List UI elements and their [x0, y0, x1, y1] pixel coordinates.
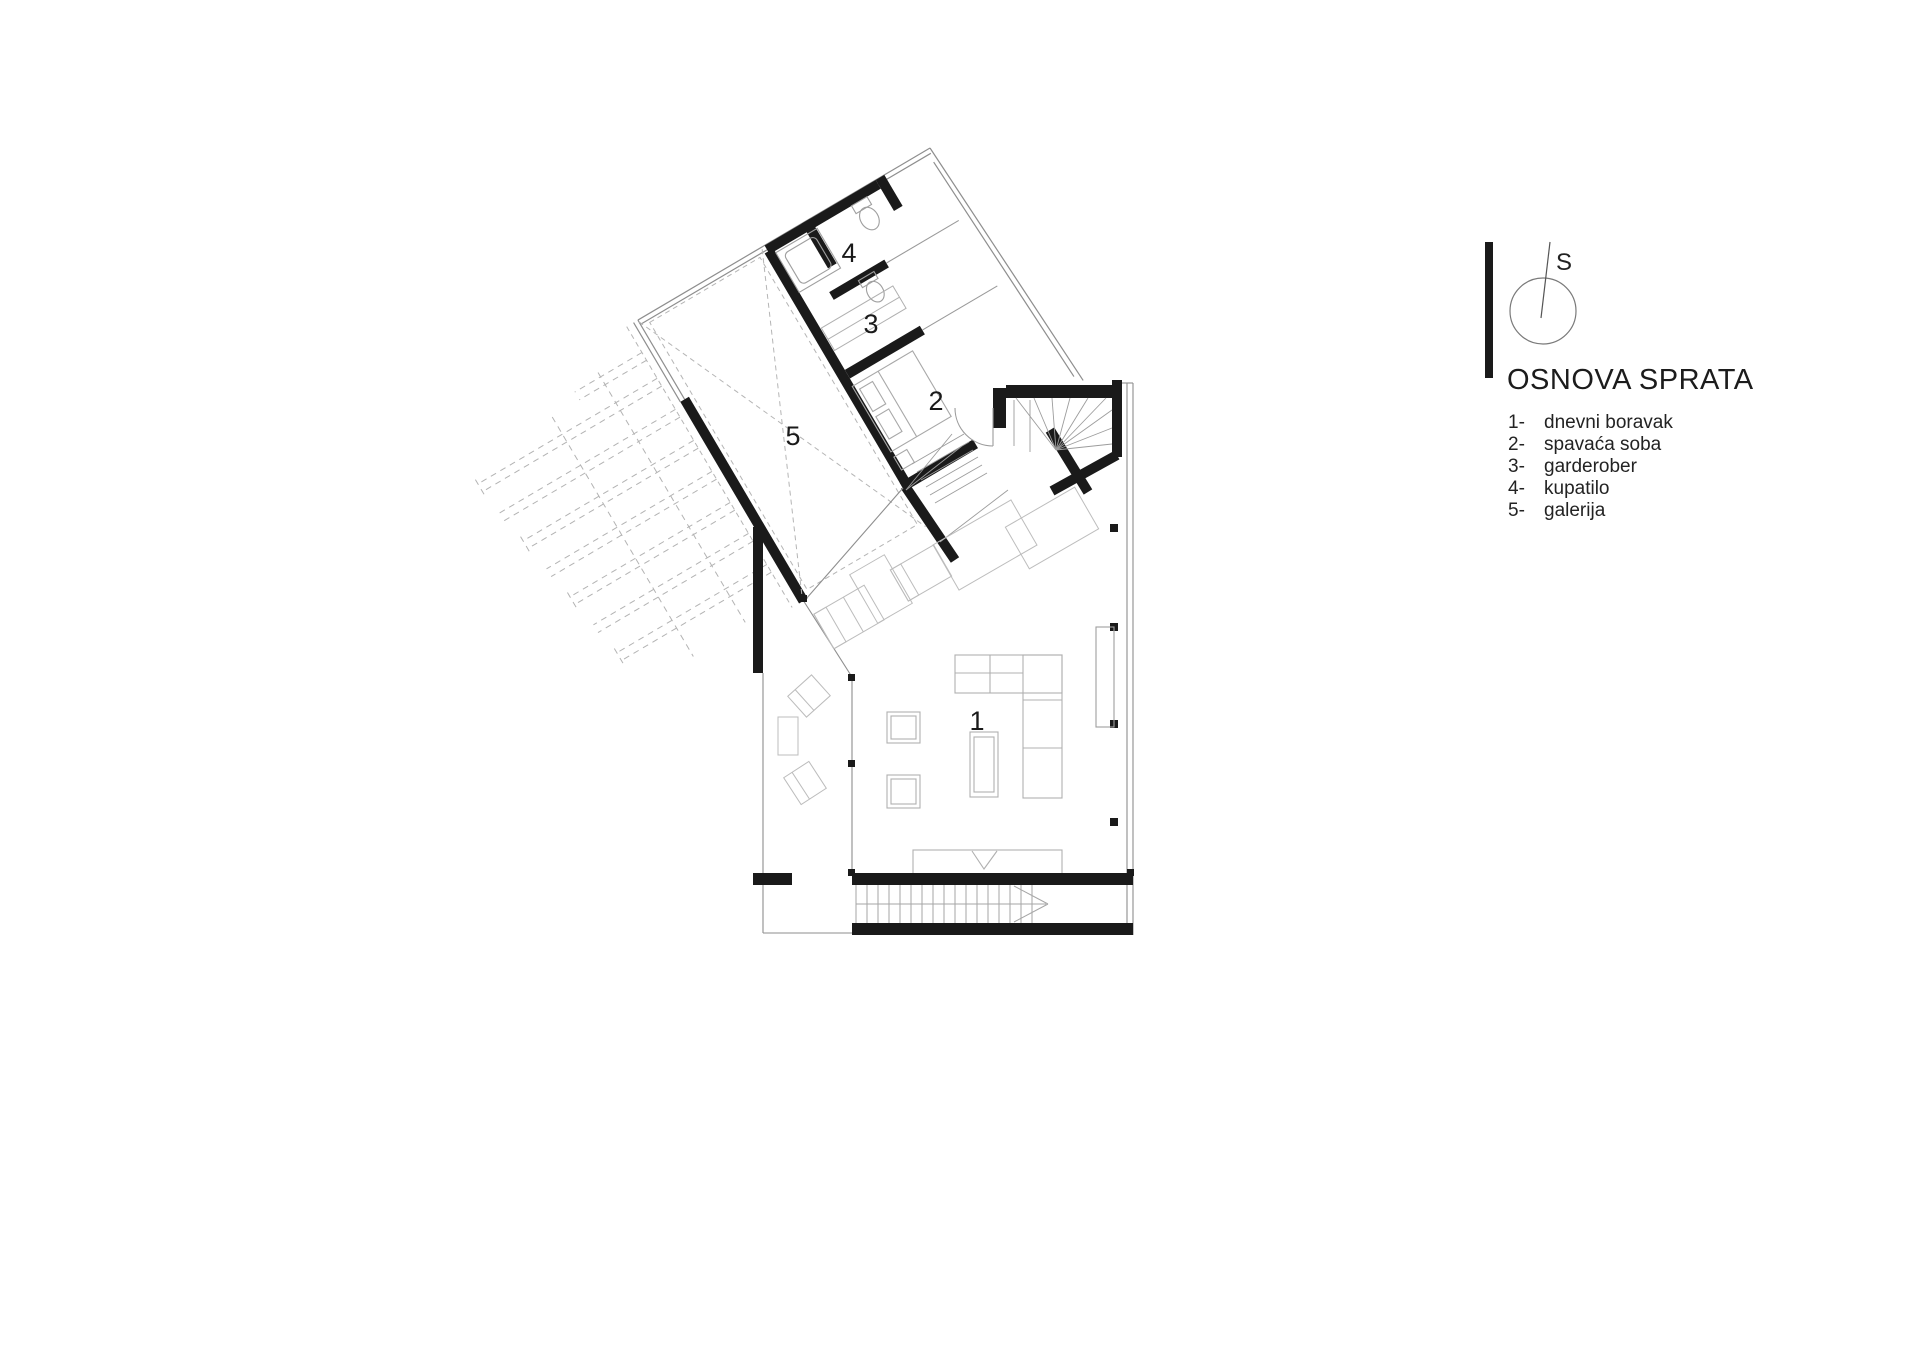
chevron-mark — [972, 851, 997, 869]
room-label-3: 3 — [863, 309, 878, 339]
legend-label-2: spavaća soba — [1544, 434, 1662, 455]
room-label-5: 5 — [785, 421, 800, 451]
terrace-wall — [753, 527, 763, 673]
floor-plan-canvas: 1 2 3 4 5 S OSNOVA SPRATA 1- dnevni bora… — [0, 0, 1920, 1358]
legend-num-3: 3- — [1508, 456, 1525, 477]
legend-num-5: 5- — [1508, 500, 1525, 521]
stair-wall-top — [852, 873, 1133, 885]
north-symbol: S — [1510, 242, 1576, 344]
stair-wall-bottom — [852, 923, 1133, 935]
title-bar — [1485, 242, 1493, 378]
roof-outline — [634, 141, 1084, 562]
legend-label-5: galerija — [1544, 500, 1606, 521]
shelf — [1096, 627, 1114, 727]
wing-ne-corner-stub — [876, 175, 903, 211]
north-label: S — [1556, 249, 1572, 276]
legend-num-1: 1- — [1508, 412, 1525, 433]
exterior-staircase — [753, 873, 1133, 935]
legend-label-1: dnevni boravak — [1544, 412, 1673, 433]
room-label-2: 2 — [928, 386, 943, 416]
stair-east-wall — [1112, 380, 1122, 457]
stair-landings — [933, 487, 1099, 590]
small-stair-treads — [906, 434, 1008, 542]
upper-wing — [447, 141, 1107, 713]
canopy — [913, 850, 1062, 875]
legend-label-4: kupatilo — [1544, 478, 1610, 499]
north-circle — [1510, 278, 1576, 344]
junction-wall — [905, 486, 955, 560]
columns — [800, 524, 1134, 876]
partition-extensions — [884, 220, 998, 330]
room-label-1: 1 — [969, 706, 984, 736]
legend-num-4: 4- — [1508, 478, 1525, 499]
door-swing — [955, 408, 993, 446]
stair-arrow — [1014, 886, 1048, 904]
armchairs — [887, 712, 920, 808]
north-needle — [1541, 242, 1550, 318]
stair-arrow — [1014, 904, 1048, 922]
legend-num-2: 2- — [1508, 434, 1525, 455]
room-label-4: 4 — [841, 238, 856, 268]
loungers — [778, 545, 952, 805]
coffee-table — [970, 732, 998, 797]
galerija-east-wall — [765, 248, 913, 490]
stair-treads — [856, 885, 1048, 923]
page: 1 2 3 4 5 S OSNOVA SPRATA 1- dnevni bora… — [0, 0, 1920, 1358]
roof-beams-dashed — [460, 348, 788, 706]
title-block: S OSNOVA SPRATA 1- dnevni boravak 2- spa… — [1485, 242, 1754, 521]
legend-label-3: garderober — [1544, 456, 1638, 477]
stair-block — [806, 380, 1122, 599]
page-title: OSNOVA SPRATA — [1507, 364, 1754, 396]
stair-north-wall — [1006, 385, 1112, 398]
legend: 1- dnevni boravak 2- spavaća soba 3- gar… — [1508, 412, 1673, 521]
toilet-icon — [856, 204, 884, 234]
stair-t-wall — [993, 388, 1006, 428]
stub-wall — [753, 873, 792, 885]
